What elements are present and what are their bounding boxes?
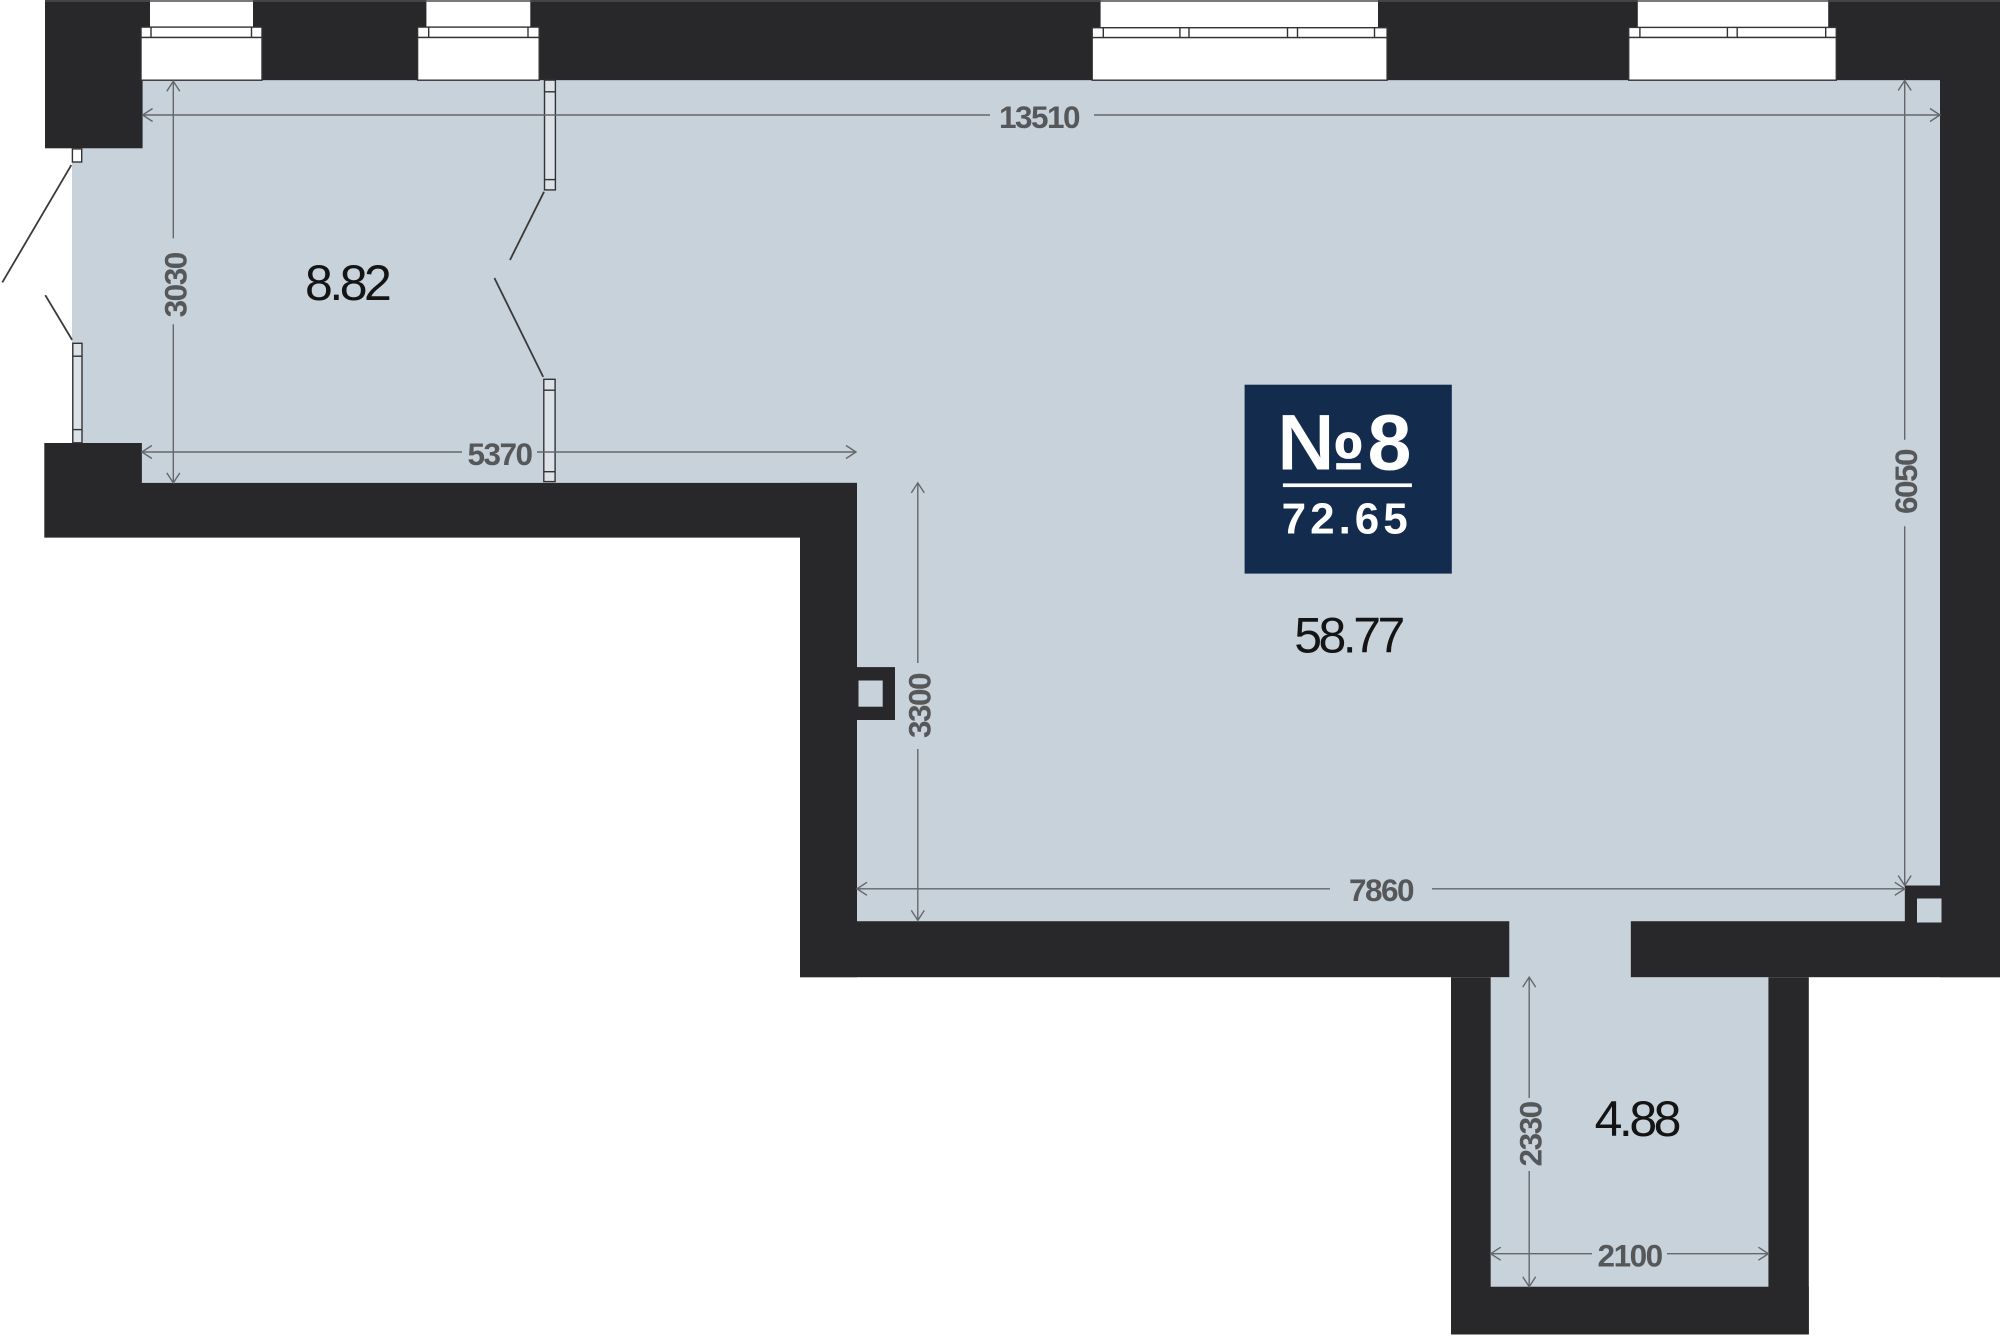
- svg-text:8.82: 8.82: [305, 255, 390, 311]
- svg-text:4.88: 4.88: [1595, 1091, 1680, 1147]
- svg-text:2100: 2100: [1598, 1238, 1663, 1274]
- svg-text:3300: 3300: [901, 673, 937, 738]
- svg-text:58.77: 58.77: [1294, 607, 1403, 663]
- svg-text:72.65: 72.65: [1282, 495, 1412, 544]
- svg-text:13510: 13510: [999, 99, 1080, 135]
- svg-text:6050: 6050: [1888, 449, 1924, 514]
- svg-text:2330: 2330: [1513, 1101, 1549, 1166]
- svg-text:№8: №8: [1277, 398, 1413, 487]
- svg-text:7860: 7860: [1349, 872, 1414, 908]
- svg-text:5370: 5370: [467, 436, 532, 472]
- svg-text:3030: 3030: [157, 252, 193, 317]
